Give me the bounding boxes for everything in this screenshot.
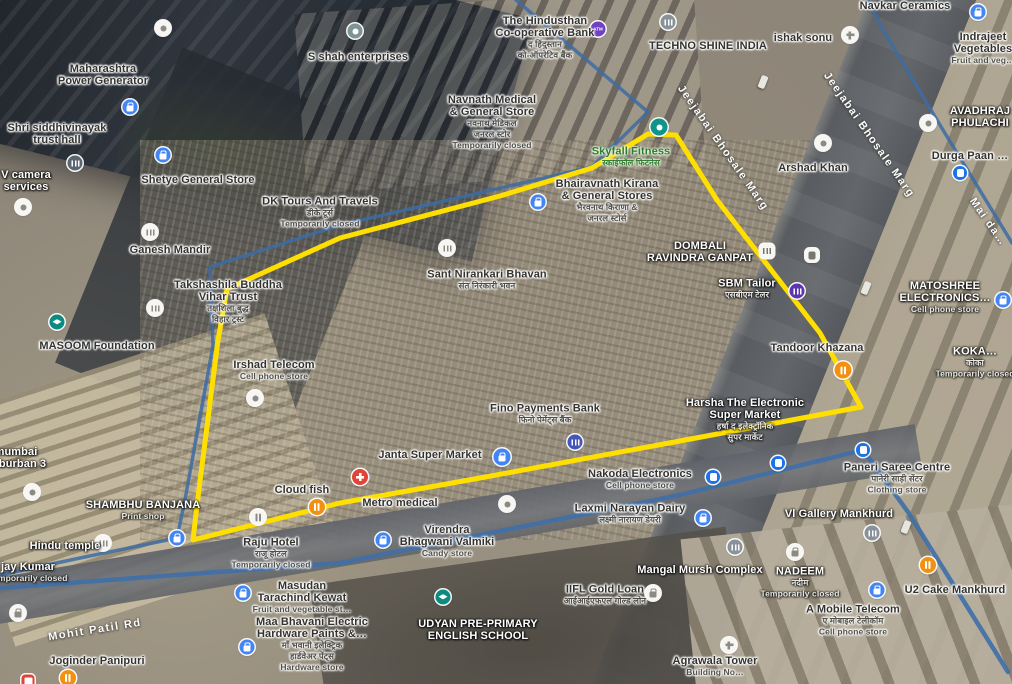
masudan-tarachind-kewat-label[interactable]: MasudanTarachind KewatFruit and vegetabl… [253,580,352,614]
durga-paan-label[interactable]: Durga Paan … [932,150,1008,162]
techno-shine-india-icon[interactable] [661,15,676,30]
janta-super-market-label[interactable]: Janta Super Market [378,449,481,461]
arshad-khan-icon[interactable] [816,136,831,151]
cloud-fish-icon[interactable] [309,499,325,515]
shambhu-banjana-icon[interactable] [170,531,185,546]
virendra-bhagwani-valmiki-label[interactable]: VirendraBhagwani ValmikiCandy store [400,524,495,558]
sant-nirankari-bhavan-label[interactable]: Sant Nirankari Bhavanसंत निरंकारी भवन [427,269,546,292]
bus-stop-1-icon[interactable] [706,470,720,484]
marker-bottom-left-icon[interactable] [22,675,35,684]
tandoor-khazana-icon[interactable] [835,362,852,379]
fino-payments-bank-icon[interactable] [568,435,583,450]
nakoda-electronics-label[interactable]: Nakoda ElectronicsCell phone store [588,468,692,490]
hindu-temple-label[interactable]: Hindu temple [30,540,101,552]
skyfall-fitness-label[interactable]: Skyfall Fitnessस्काईफॉल फिटनेस [592,146,671,169]
siddhivinayak-trust-hall-label[interactable]: Shri siddhivinayaktrust hall [7,122,106,146]
bhairavnath-kirana-icon[interactable] [531,195,546,210]
fino-payments-bank-label[interactable]: Fino Payments Bankफिनो पेमेंट्स बैंक [490,403,600,426]
camera-services-icon[interactable] [16,200,31,215]
bus-stop-4-icon[interactable] [953,166,967,180]
masoom-foundation-label[interactable]: MASOOM Foundation [39,340,154,352]
dombali-ravindra-ganpat-label[interactable]: DOMBALIRAVINDRA GANPAT [647,240,753,264]
avadhraj-phulachi-label[interactable]: AVADHRAJPHULACHI [950,105,1010,129]
a-mobile-telecom-icon[interactable] [870,583,885,598]
store-near-laxmi-icon[interactable] [696,511,711,526]
cloud-fish-label[interactable]: Cloud fish [275,484,330,496]
metro-medical-icon[interactable] [352,469,368,485]
tandoor-khazana-label[interactable]: Tandoor Khazana [771,342,864,354]
sbm-tailor-label[interactable]: SBM Tailorएसबीएम टेलर [718,278,776,301]
joginder-panipuri-label[interactable]: Joginder Panipuri [49,655,144,667]
nadeem-label[interactable]: NADEEMनदीमTemporarily closed [760,566,839,599]
jay-kumar-icon[interactable] [11,606,26,621]
masudan-tarachind-kewat-icon[interactable] [236,586,251,601]
iifl-gold-loan-icon[interactable] [646,586,661,601]
virendra-bhagwani-valmiki-icon[interactable] [376,533,391,548]
raju-hotel-icon[interactable] [251,510,266,525]
metro-medical-label[interactable]: Metro medical [362,497,437,509]
poi-center-road-icon[interactable] [500,497,515,512]
udyan-pre-primary-school-icon[interactable] [436,590,451,605]
mangal-mursh-complex-icon[interactable] [728,540,743,555]
udyan-pre-primary-school-label[interactable]: UDYAN PRE-PRIMARYENGLISH SCHOOL [418,618,537,642]
joginder-panipuri-icon[interactable] [60,670,76,684]
s-shah-enterprises-label[interactable]: S shah enterprises [308,51,408,63]
vl-gallery-mankhurd-label[interactable]: Vl Gallery Mankhurd [785,508,893,520]
hindusthan-cooperative-bank-label[interactable]: The HindusthanCo-operative Bankद हिंदुस्… [496,15,595,61]
a-mobile-telecom-label[interactable]: A Mobile Telecomए मोबाइल टेलीकॉमCell pho… [806,604,900,637]
raju-hotel-label[interactable]: Raju Hotelराजू होटलTemporarily closed [231,537,310,570]
jay-kumar-label[interactable]: jay KumarTemporarily closed [0,561,68,583]
vl-gallery-mankhurd-icon[interactable] [865,526,880,541]
shetye-general-store-label[interactable]: Shetye General Store [141,174,254,186]
laxmi-narayan-dairy-label[interactable]: Laxmi Narayan Dairyलक्ष्मी नारायण डेयरी [575,503,686,526]
matoshree-electronics-icon[interactable] [996,293,1011,308]
janta-super-market-icon[interactable] [494,449,511,466]
agrawala-tower-label[interactable]: Agrawala TowerBuilding No… [673,655,758,677]
maharashtra-power-generator-icon[interactable] [123,100,138,115]
maa-bhavani-electric-label[interactable]: Maa Bhavani ElectricHardware Paints &…मा… [256,616,368,672]
indrajeet-vegetables-icon[interactable] [971,5,986,20]
u2-cake-mankhurd-label[interactable]: U2 Cake Mankhurd [905,584,1006,596]
irshad-telecom-label[interactable]: Irshad TelecomCell phone store [233,359,314,381]
harsha-electronic-supermarket-label[interactable]: Harsha The ElectronicSuper Marketहर्षा द… [686,397,804,443]
mumbai-suburban-3-icon[interactable] [25,485,40,500]
techno-shine-india-label[interactable]: TECHNO SHINE INDIA [649,40,767,52]
iifl-gold-loan-label[interactable]: IIFL Gold Loanआईआईएफएल गोल्ड लोन [564,584,646,607]
takshashila-buddha-vihar-label[interactable]: Takshashila BuddhaVihar Trustतक्षशिला बु… [174,279,282,325]
bus-sign-icon[interactable] [806,249,819,262]
bus-stop-3-icon[interactable] [856,443,870,457]
shetye-general-store-icon[interactable] [156,148,171,163]
shambhu-banjana-label[interactable]: SHAMBHU BANJANAPrint shop [86,499,201,521]
ishak-sonu-icon[interactable] [843,28,858,43]
nadeem-icon[interactable] [788,545,803,560]
masoom-foundation-icon[interactable] [50,315,65,330]
mangal-mursh-complex-label[interactable]: Mangal Mursh Complex [637,564,762,576]
siddhivinayak-trust-hall-icon[interactable] [68,156,83,171]
sant-nirankari-bhavan-icon[interactable] [440,241,455,256]
bus-stop-2-icon[interactable] [771,456,785,470]
agrawala-tower-icon[interactable] [722,638,737,653]
ishak-sonu-label[interactable]: ishak sonu [774,32,832,44]
sbm-tailor-icon[interactable] [790,284,805,299]
camera-services-label[interactable]: V cameraservices [1,169,51,193]
ganesh-mandir-icon[interactable] [143,225,158,240]
u2-cake-mankhurd-icon[interactable] [920,557,936,573]
paneri-saree-centre-label[interactable]: Paneri Saree Centreपानेरी साड़ी सेंटरClo… [844,462,950,495]
ganesh-mandir-label[interactable]: Ganesh Mandir [130,244,211,256]
s-shah-enterprises-icon[interactable] [348,24,363,39]
avadhraj-phulachi-icon[interactable] [921,116,936,131]
satellite-map-canvas[interactable]: Jeejabai Bhosale MargJeejabai Bhosale Ma… [0,0,1012,684]
bhairavnath-kirana-label[interactable]: Bhairavnath Kirana& General Storesभैरवना… [556,178,659,224]
takshashila-buddha-vihar-icon[interactable] [148,301,163,316]
arshad-khan-label[interactable]: Arshad Khan [778,162,848,174]
dombali-ravindra-ganpat-icon[interactable] [760,244,774,258]
irshad-telecom-icon[interactable] [248,391,263,406]
mumbai-suburban-3-label[interactable]: mumbaisuburban 3 [0,446,46,470]
indrajeet-vegetables-label[interactable]: IndrajeetVegetablesFruit and veg… [951,31,1012,65]
navkar-ceramics-label[interactable]: Navkar Ceramics [860,0,951,12]
navnath-medical-label[interactable]: Navnath Medical& General Storeनवनाथ मेडि… [448,94,536,150]
skyfall-fitness-icon[interactable] [651,119,668,136]
store-top-left-icon[interactable] [156,21,171,36]
koka-label[interactable]: KOKA…कोकाTemporarily closed [935,346,1012,379]
dk-tours-and-travels-label[interactable]: DK Tours And Travelsडीके टूर्सTemporaril… [262,196,378,229]
matoshree-electronics-label[interactable]: MATOSHREEELECTRONICS…Cell phone store [899,280,990,314]
maa-bhavani-electric-icon[interactable] [240,640,255,655]
maharashtra-power-generator-label[interactable]: MaharashtraPower Generator [58,63,148,87]
